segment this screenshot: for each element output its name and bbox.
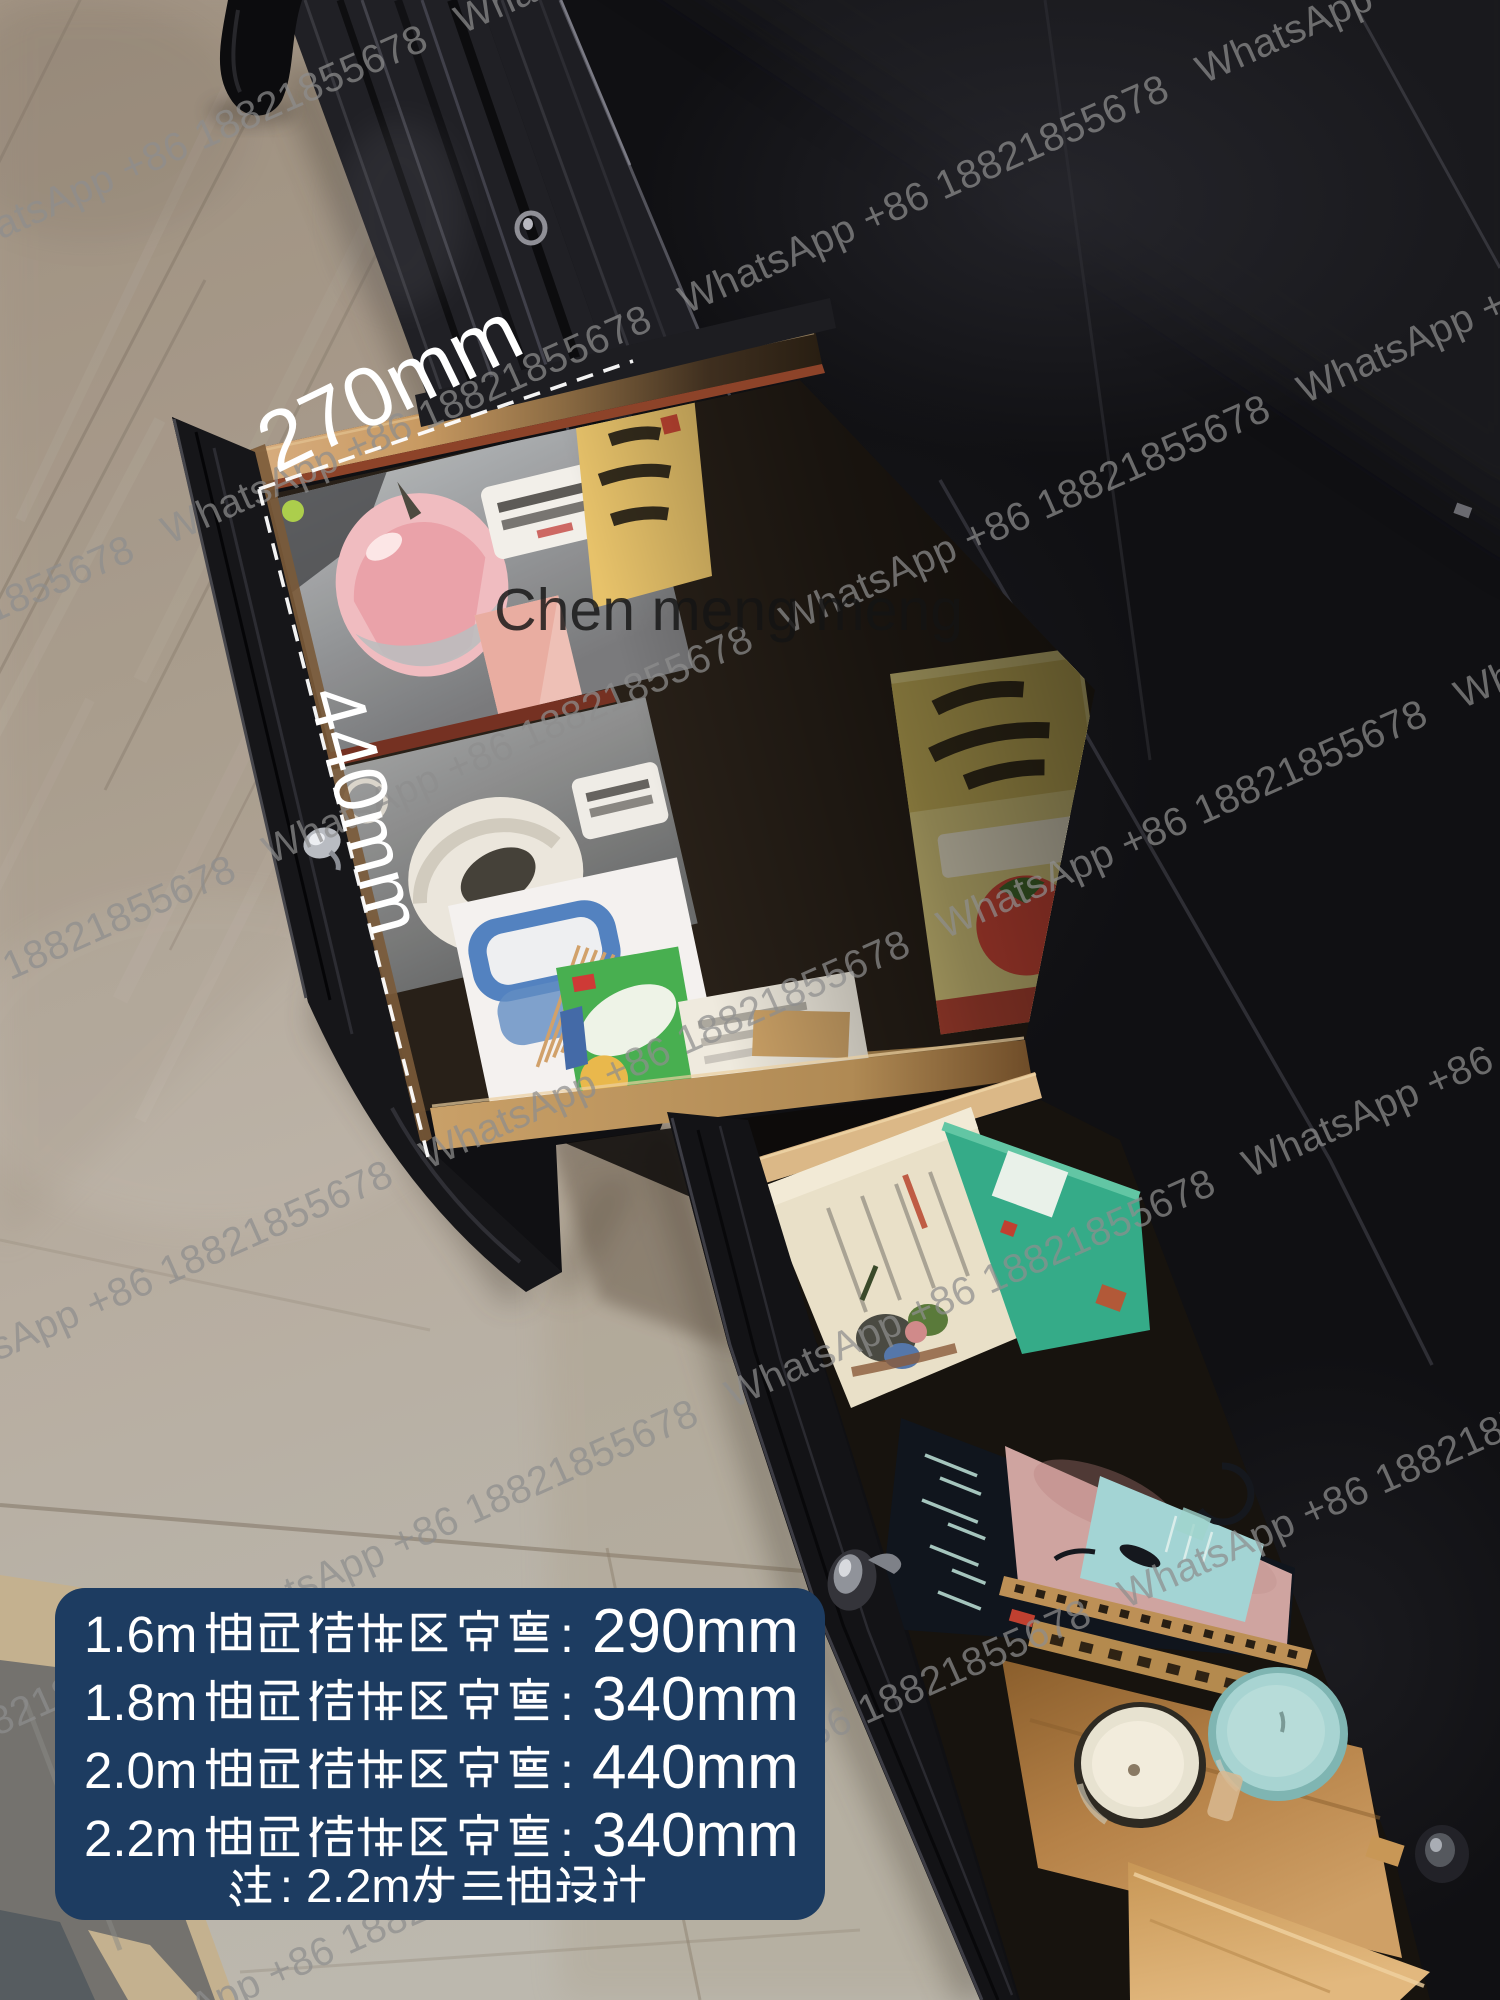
svg-text::: : bbox=[560, 1675, 574, 1731]
svg-text:340mm: 340mm bbox=[592, 1665, 799, 1734]
svg-text:Chen meng meng: Chen meng meng bbox=[494, 577, 963, 643]
svg-text::: : bbox=[280, 1860, 293, 1912]
svg-text:1.8m: 1.8m bbox=[84, 1674, 197, 1731]
svg-text:2.0m: 2.0m bbox=[84, 1742, 197, 1799]
svg-text:290mm: 290mm bbox=[592, 1597, 799, 1666]
svg-text:2.2m: 2.2m bbox=[306, 1859, 411, 1912]
svg-text::: : bbox=[560, 1607, 574, 1663]
svg-text:2.2m: 2.2m bbox=[84, 1810, 197, 1867]
svg-text::: : bbox=[560, 1743, 574, 1799]
svg-text::: : bbox=[560, 1811, 574, 1867]
svg-text:340mm: 340mm bbox=[592, 1801, 799, 1870]
svg-text:440mm: 440mm bbox=[592, 1733, 799, 1802]
svg-text:1.6m: 1.6m bbox=[84, 1606, 197, 1663]
